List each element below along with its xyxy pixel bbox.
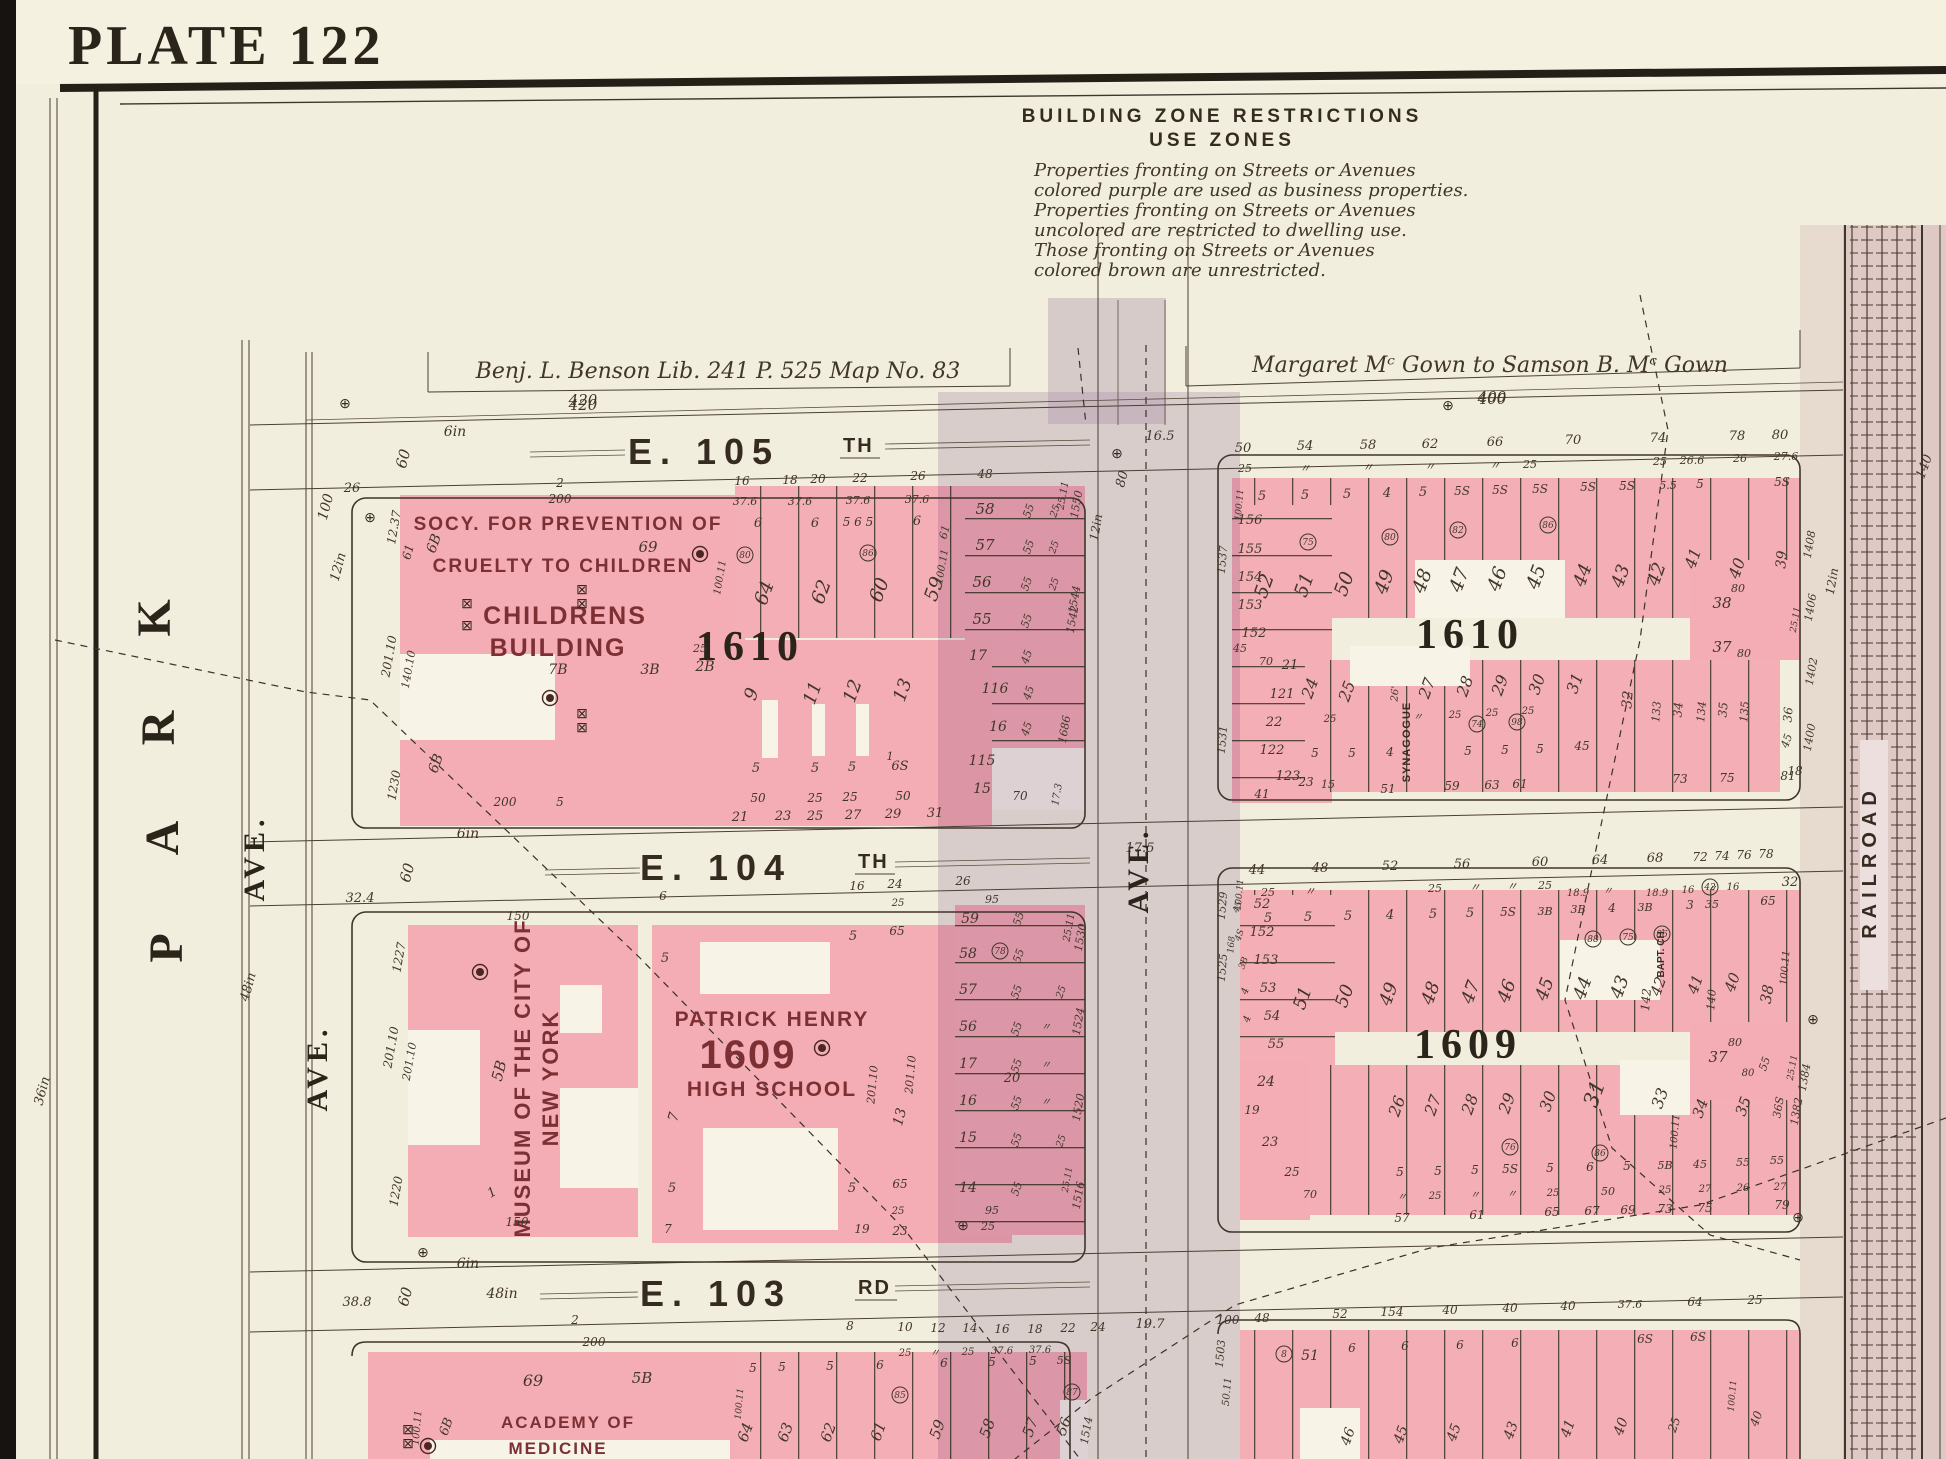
circled-number: 76 (1504, 1143, 1516, 1153)
lot-number: 27 (1698, 1184, 1712, 1195)
zone-line: Those fronting on Streets or Avenues (1034, 240, 1375, 261)
lot-number: 16.5 (1146, 429, 1175, 444)
lot-number: 51 (1380, 782, 1395, 796)
lot-number: 24 (886, 877, 902, 891)
lot-number: 32 (1619, 690, 1636, 709)
lot-number: 〃 (1507, 880, 1518, 893)
lot-number: 78 (1758, 847, 1774, 861)
lot-number: 〃 (930, 1348, 940, 1359)
lot-number: 5 (1429, 907, 1437, 922)
lot-number: 57 (975, 536, 995, 554)
lot-number: 50 (1235, 441, 1252, 456)
lot-number: 56 (972, 573, 992, 591)
atlas-plate-page: PLATE 122 BUILDING ZONE RESTRICTIONS USE… (0, 0, 1946, 1459)
lot-number: 4 (1607, 901, 1616, 915)
lot-number: 65 (892, 1177, 907, 1191)
lot-number: 27 (844, 808, 862, 823)
lot-number: 3B (640, 662, 659, 678)
lot-number: 25 (1427, 882, 1442, 895)
lot-number: 35 (1705, 898, 1719, 911)
lot-number: 6 (913, 514, 921, 529)
lot-number: 135 (1737, 701, 1752, 723)
lot-number: 39 (1773, 550, 1790, 569)
lot-number: 1537 (1215, 545, 1230, 574)
lot-number: 16 (959, 1093, 977, 1109)
lot-number: 6 (1456, 1338, 1464, 1352)
lot-number: 80 (1772, 428, 1789, 443)
lot-number: 37.6 (905, 493, 930, 506)
map-symbol: ⊠ (576, 583, 588, 598)
street-e104th: E. 104 (640, 847, 792, 888)
lot-number: 1 (887, 750, 894, 763)
block-number-se: 1609 (1414, 1022, 1522, 1068)
map-symbol: ⊕ (417, 1246, 429, 1261)
lot-number: 152 (1250, 925, 1275, 940)
lot-number: 25 (1522, 458, 1537, 471)
park-ave-suffix: AVE. (238, 815, 271, 902)
map-symbol: ⊠ (461, 619, 473, 634)
lot-number: 21 (731, 810, 749, 825)
map-symbol: ⊕ (1807, 1013, 1819, 1028)
lot-number: 7 (664, 1222, 672, 1236)
lot-number: 22 (851, 471, 867, 485)
lot-number: 6in (457, 826, 479, 842)
lot-number: 19 (854, 1222, 870, 1236)
lot-number: 1531 (1215, 725, 1230, 754)
lot-number: 23 (774, 809, 792, 824)
circled-number: 78 (994, 947, 1006, 957)
circled-number: 82 (1452, 526, 1464, 536)
lot-number: 80 (1731, 582, 1745, 595)
lot-number: 22 (1265, 715, 1283, 730)
lot-number: 134 (1694, 701, 1709, 723)
lot-number: 〃 (1603, 886, 1613, 897)
lot-number: 25 (891, 898, 905, 909)
lot-number: 81 (1780, 769, 1795, 783)
lot-number: 45 (1692, 1158, 1707, 1171)
lot-number: 18.9 (1646, 888, 1669, 899)
school-label1: PATRICK HENRY (675, 1008, 870, 1031)
lot-number: 5 (1344, 909, 1352, 924)
lot-number: 6 (940, 1356, 948, 1370)
lot-number: 200 (582, 1335, 606, 1349)
lot-number: 67 (1584, 1204, 1600, 1218)
lot-number: 37.6 (846, 494, 871, 507)
lot-number: 59 (961, 911, 979, 927)
lot-number: 〃 (1470, 881, 1481, 894)
lot-number: 2B (694, 659, 714, 675)
lot-number: 5 (752, 761, 760, 776)
lot-number: 5 (556, 795, 564, 809)
museum-label1: MUSEUM OF THE CITY OF (510, 918, 535, 1237)
lot-number: 123 (1276, 769, 1301, 784)
lot-number: 14 (962, 1321, 977, 1335)
lot-number: 24 (1089, 1320, 1105, 1334)
lot-number: 5 (848, 1181, 856, 1196)
lot-number: 69 (638, 538, 658, 556)
lot-number: 5 (1304, 910, 1312, 925)
lot-number: 16 (989, 719, 1007, 735)
lot-number: 25 (1652, 455, 1667, 468)
lot-number: 25 (1546, 1188, 1560, 1199)
park-letter: A (136, 820, 189, 855)
lot-number: 6S (1637, 1332, 1653, 1346)
lot-number: 4 (1385, 745, 1394, 759)
lot-number: 153 (1254, 953, 1279, 968)
central-ave-label: AVE. (301, 1025, 334, 1112)
zone-notice-title1: BUILDING ZONE RESTRICTIONS (1022, 106, 1423, 127)
lot-number: 54 (1297, 439, 1314, 454)
lot-number: 70 (1303, 1188, 1317, 1201)
map-symbol: ⊕ (957, 1219, 969, 1234)
lot-number: 38 (1712, 594, 1731, 612)
zone-line: Properties fronting on Streets or Avenue… (1033, 200, 1416, 221)
lot-number: 76 (1736, 848, 1752, 862)
lot-number: 〃 (1300, 462, 1311, 475)
lot-number: 〃 (1413, 712, 1423, 723)
lot-number: 140 (1704, 989, 1719, 1011)
lot-number: 200 (493, 795, 517, 809)
lot-number: 〃 (1397, 1192, 1407, 1203)
zone-line: colored purple are used as business prop… (1034, 180, 1468, 201)
map-symbol: ⊠ (402, 1437, 414, 1452)
lot-number: 6 (1511, 1336, 1519, 1350)
zone-line: uncolored are restricted to dwelling use… (1034, 220, 1407, 241)
lot-number: 27 (1773, 1182, 1787, 1193)
lot-number: 26.6 (1679, 454, 1705, 467)
lot-number: 5 (668, 1181, 676, 1196)
map-symbol: ⊠ (576, 721, 588, 736)
lot-number: 26 (909, 469, 926, 483)
circled-number: 88 (1587, 935, 1599, 945)
map-canvas: PLATE 122 BUILDING ZONE RESTRICTIONS USE… (0, 0, 1946, 1459)
lot-number: 52 (1254, 897, 1271, 912)
lot-number: 6S (1690, 1330, 1706, 1344)
lot-number: 6S (891, 759, 908, 774)
lot-number: 73 (1672, 772, 1688, 786)
lot-number: 23 (1297, 775, 1314, 789)
lot-number: 25 (1746, 1293, 1762, 1307)
street-e105th: E. 105 (628, 431, 780, 472)
lot-number: 3B (1637, 901, 1652, 914)
lot-number: 〃 (1041, 1097, 1051, 1108)
lot-number: 34 (1670, 701, 1685, 717)
lot-number: 62 (1422, 437, 1439, 452)
lot-number: 2 (555, 476, 564, 490)
zone-line: colored brown are unrestricted. (1034, 260, 1326, 281)
map-symbol: ⊠ (576, 597, 588, 612)
lot-number: 6 (659, 889, 667, 903)
lot-number: 1525 (1215, 953, 1230, 982)
lot-number: 5 (826, 1359, 834, 1373)
lot-number: 5 (1311, 746, 1319, 760)
lot-number: 26 (343, 481, 361, 496)
lot-number: 37.6 (1618, 1298, 1643, 1311)
lot-number: 10 (897, 1320, 913, 1334)
lot-number: 53 (1260, 981, 1277, 996)
map-symbol: ⊠ (402, 1423, 414, 1438)
lot-number: 25 (1521, 706, 1535, 717)
lot-number: 〃 (1470, 1190, 1480, 1201)
lot-number: 41 (1253, 787, 1269, 801)
lot-number: 6 (1586, 1160, 1594, 1174)
academy-label1: ACADEMY OF (501, 1413, 635, 1432)
circled-number: 86 (1542, 521, 1554, 531)
lot-number: 19 (1244, 1103, 1260, 1117)
lot-number: 25 (1448, 710, 1462, 721)
lot-number: 55 (1268, 1037, 1285, 1052)
lot-number: 75 (1697, 1201, 1712, 1215)
lot-number: 4 (1382, 486, 1391, 501)
lot-number: 78 (1729, 429, 1746, 444)
lot-number: 60 (1532, 855, 1549, 870)
lot-number: 32 (1782, 875, 1799, 890)
lot-number: 52 (1332, 1307, 1347, 1321)
lot-number: 17.5 (1126, 841, 1155, 856)
lot-number: 5 (1536, 742, 1544, 756)
lot-number: 153 (1238, 598, 1263, 613)
lot-number: 5 (1501, 743, 1509, 757)
lot-number: 4 (1385, 908, 1394, 923)
lot-number: 〃 (1305, 885, 1316, 898)
lot-number: 80 (1742, 1068, 1755, 1079)
lot-number: 5 (1466, 906, 1474, 921)
lot-number: 40 (1441, 1303, 1458, 1317)
lot-number: 55 (1770, 1154, 1784, 1167)
lot-number: 25 (1323, 714, 1337, 725)
lot-number: 58 (959, 946, 977, 962)
lot-number: 150 (506, 1215, 529, 1229)
lot-number: 5B (632, 1369, 653, 1387)
lot-number: 5.5 (1659, 479, 1677, 492)
lot-number: 22 (1059, 1321, 1075, 1335)
building-dot (818, 1044, 826, 1052)
map-symbol: ⊕ (339, 397, 351, 412)
building-dot (424, 1442, 432, 1450)
lot-number: 5S (1502, 1162, 1518, 1176)
lot-number: 56 (1454, 857, 1471, 872)
lot-number: 73 (1657, 1202, 1673, 1216)
lot-number: 5 (1546, 1161, 1554, 1175)
lot-number: 168 (1226, 936, 1237, 954)
lot-number: 〃 (1425, 460, 1436, 473)
lot-number: 6in (457, 1256, 479, 1272)
street-e104th-suffix: TH (858, 851, 889, 873)
lot-number: 5 6 5 (843, 515, 874, 529)
lot-number: 26 (954, 874, 971, 888)
lot-number: 2 (570, 1313, 579, 1327)
circled-number: 75 (1302, 538, 1314, 548)
lot-number: 5 (1623, 1159, 1631, 1173)
lot-number: 18.9 (1567, 888, 1590, 899)
lot-number: 44 (1248, 863, 1266, 878)
lot-number: 6 (811, 516, 819, 531)
lot-number: 38.8 (343, 1295, 372, 1310)
lot-number: 29 (884, 807, 902, 822)
lot-number: 5 (1258, 489, 1266, 504)
lot-number: 〃 (1490, 459, 1501, 472)
lot-number: 25 (1428, 1191, 1442, 1202)
lot-number: 3 (1686, 898, 1694, 912)
lot-number: 1529 (1215, 891, 1230, 920)
lot-number: 80 (1728, 1036, 1742, 1049)
circled-number: 75 (1622, 933, 1634, 943)
lot-number: 7B (548, 662, 567, 678)
lot-number: 79 (1774, 1198, 1790, 1212)
park-letter: R (132, 709, 185, 745)
lot-number: 75 (1719, 771, 1734, 785)
block-number-sw: 1609 (700, 1033, 797, 1077)
map-symbol: ⊕ (364, 511, 376, 526)
lot-number: 〃 (1363, 461, 1374, 474)
lot-number: 5 (1343, 487, 1351, 502)
lot-number: 5 (778, 1360, 786, 1374)
lot-number: 6 (876, 1358, 884, 1372)
map-symbol: ⊠ (576, 707, 588, 722)
circled-number: 42 (1703, 883, 1716, 893)
lot-number: 5 (1264, 911, 1272, 926)
lot-number: 25 (891, 1206, 905, 1217)
lot-number: 152 (1242, 626, 1267, 641)
lot-number: 25 (961, 1347, 975, 1358)
lot-number: 5S (1500, 905, 1516, 919)
circled-number: 8 (1281, 1350, 1287, 1360)
building-dot (546, 694, 554, 702)
lot-number: 122 (1260, 743, 1285, 758)
lot-number: 48in (485, 1286, 517, 1302)
lot-number: 50 (1601, 1185, 1615, 1198)
lot-number: 70 (1012, 789, 1028, 803)
map-symbol: ⊕ (1442, 399, 1454, 414)
lot-number: 155 (1238, 542, 1263, 557)
synagogue-label: SYNAGOGUE (1401, 702, 1413, 783)
lot-number: 65 (1544, 1205, 1559, 1219)
circled-number: 87 (1066, 1388, 1078, 1398)
lot-number: 55 (1736, 1156, 1750, 1169)
zone-notice-title2: USE ZONES (1149, 130, 1295, 151)
lot-number: 420 (568, 391, 598, 409)
map-symbol: ⊕ (1792, 1211, 1804, 1226)
lot-number: 25 (806, 791, 822, 805)
circled-number: 86 (1656, 930, 1668, 940)
lot-number: 121 (1270, 687, 1295, 702)
lot-number: 1503 (1213, 1339, 1228, 1368)
lot-number: 5 (1301, 488, 1309, 503)
railroad-label: RAILROAD (1859, 785, 1881, 939)
lot-number: 95 (985, 1204, 999, 1217)
lot-number: 16 (994, 1322, 1010, 1336)
society-building-label1: SOCY. FOR PREVENTION OF (414, 514, 723, 535)
lot-number: 37.6 (733, 495, 758, 508)
lot-number: 37 (1708, 1048, 1728, 1066)
lot-number: 25 (1537, 879, 1552, 892)
lot-number: 6in (444, 424, 466, 440)
plate-title: PLATE 122 (68, 15, 385, 77)
circled-number: 86 (862, 549, 874, 559)
lot-number: 154 (1381, 1305, 1404, 1319)
lot-number: 5 (849, 929, 857, 944)
lot-number: 15 (1321, 778, 1335, 791)
lot-number: 48 (976, 467, 993, 481)
lot-number: 5 (988, 1355, 996, 1369)
lot-number: 69 (523, 1371, 543, 1390)
lot-number: 25 (898, 1348, 912, 1359)
lot-number: 5S (1580, 480, 1596, 494)
lot-number: 5S (1619, 479, 1635, 493)
lot-number: 200 (548, 492, 572, 506)
lot-number: 100 (1217, 1313, 1240, 1327)
circled-number: 80 (739, 551, 751, 561)
lot-number: 51 (1301, 1348, 1319, 1364)
lot-number: 3B (1570, 903, 1585, 916)
building-dot (696, 550, 704, 558)
lot-number: 70 (1259, 655, 1273, 668)
lot-number: 17 (959, 1056, 977, 1072)
lot-number: 45 (1573, 739, 1589, 753)
street-e103rd: E. 103 (640, 1273, 792, 1314)
lot-number: 59 (1444, 779, 1460, 793)
lot-number: 54 (1264, 1009, 1281, 1024)
lot-number: 5 (848, 760, 856, 775)
lot-number: 35 (1715, 701, 1730, 717)
lot-number: 56 (959, 1019, 977, 1035)
lot-number: 38 (1757, 983, 1778, 1005)
lot-number: 24 (1256, 1074, 1275, 1090)
lot-number: 12 (930, 1321, 945, 1335)
lot-number: 5S (1057, 1354, 1072, 1367)
park-letter: P (140, 933, 193, 962)
lot-number: 5 (1471, 1163, 1479, 1177)
lot-number: 80 (1737, 647, 1751, 660)
lot-number: 65 (1760, 894, 1775, 908)
lot-number: 5 (811, 761, 819, 776)
lot-number: 5 (1696, 477, 1704, 491)
lot-number: 25 (1237, 462, 1252, 475)
childrens-building-label1: CHILDRENS (483, 602, 647, 630)
circled-number: 98 (1511, 718, 1523, 728)
block-number-ne: 1610 (1416, 612, 1524, 658)
lot-number: 57 (959, 982, 977, 998)
circled-number: 85 (894, 1391, 906, 1401)
lot-number: 16 (734, 474, 750, 488)
lot-number: 15 (959, 1130, 977, 1146)
lot-number: 115 (969, 753, 996, 769)
lot-number: 15 (973, 781, 991, 797)
lot-number: 40 (1559, 1299, 1576, 1313)
lot-number: 17 (969, 648, 987, 664)
academy-label2: MEDICINE (508, 1439, 607, 1458)
lot-number: 26' (1389, 686, 1401, 703)
lot-number: 5S (1532, 482, 1548, 496)
school-label2: HIGH SCHOOL (687, 1078, 857, 1101)
society-building-label2: CRUELTY TO CHILDREN (433, 556, 694, 577)
lot-number: 5S (1492, 483, 1508, 497)
deed-banner-benson: Benj. L. Benson Lib. 241 P. 525 Map No. … (475, 359, 961, 384)
lot-number: 〃 (1041, 1022, 1051, 1033)
circled-number: 74 (1471, 720, 1483, 730)
lot-number: 5B (1657, 1159, 1672, 1172)
lot-number: 70 (1565, 433, 1582, 448)
lot-number: 66 (1487, 435, 1504, 450)
park-letter: K (128, 599, 181, 636)
lot-number: 58 (975, 500, 994, 518)
lot-number: 74 (1650, 431, 1667, 446)
street-e103rd-suffix: RD (858, 1277, 891, 1299)
lot-number: 61 (1469, 1208, 1484, 1222)
lot-number: 116 (982, 681, 1009, 697)
lot-number: 61 (1512, 777, 1527, 791)
lot-number: 37 (1712, 638, 1732, 656)
